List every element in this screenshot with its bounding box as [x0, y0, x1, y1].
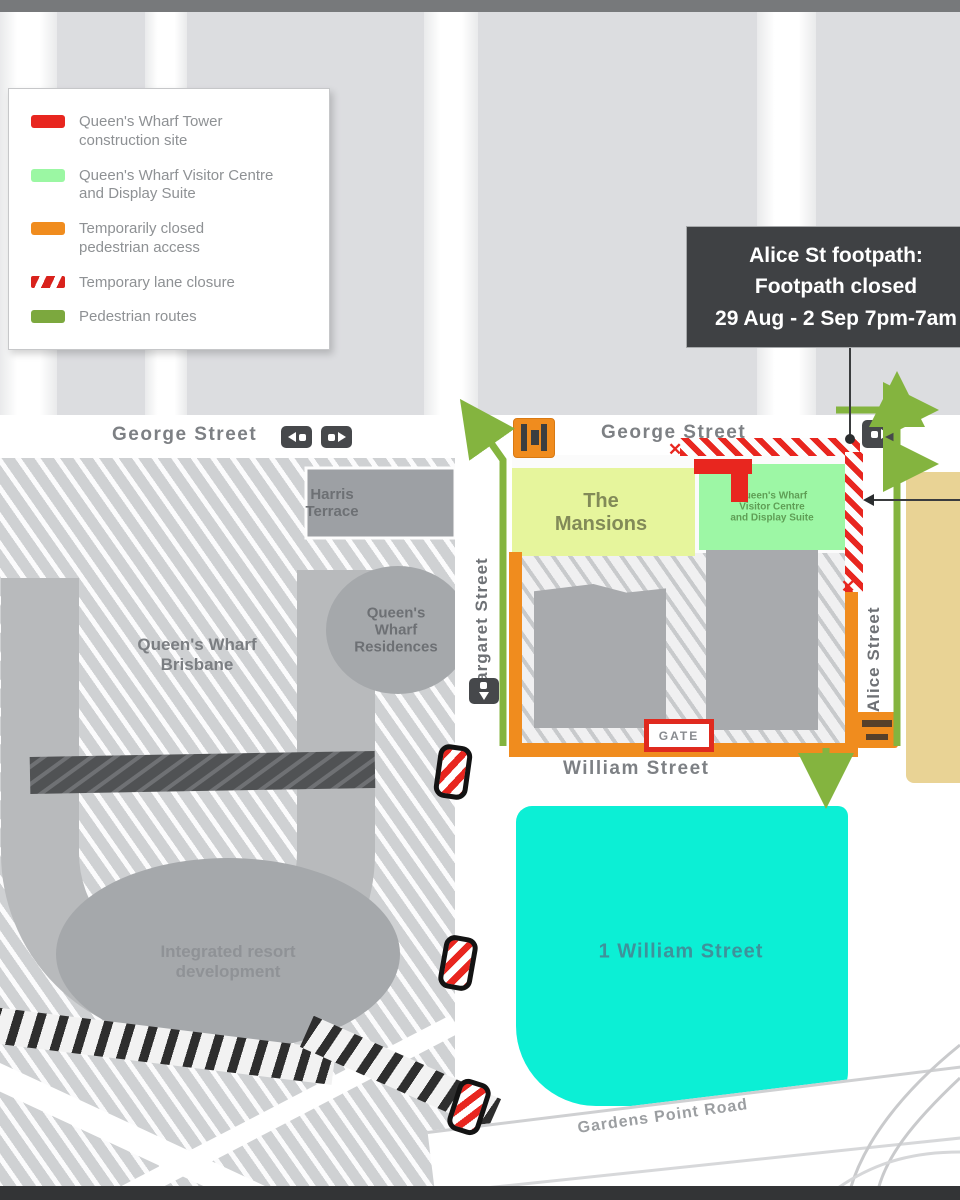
lane-closure-barrier-icon: [432, 743, 473, 801]
one-william-street-label: 1 William Street: [599, 941, 764, 964]
tooltip-line-2: Footpath closed: [687, 271, 960, 303]
lane-closure-alice-street: [845, 452, 863, 592]
pointer-arrow: [863, 494, 874, 506]
orange-swatch-icon: [31, 222, 65, 235]
legend-item-closed-access: Temporarily closed pedestrian access: [31, 220, 313, 258]
legend-label: Queen's Wharf Tower construction site: [79, 113, 222, 151]
closed-crossing-icon: [513, 418, 555, 458]
street-band: [424, 12, 478, 415]
tooltip-line-1: Alice St footpath:: [687, 240, 960, 272]
bottom-edge-strip: [0, 1186, 960, 1200]
closed-road-band: [30, 751, 376, 794]
bus-body: [299, 434, 306, 441]
pointer-line: [874, 499, 960, 501]
legend-item-lane-closure: Temporary lane closure: [31, 274, 313, 293]
qw-brisbane-label: Queen's Wharf Brisbane: [137, 635, 256, 675]
the-mansions-label: The Mansions: [555, 490, 647, 536]
green-swatch-icon: [31, 169, 65, 182]
bus-arrow-left: [288, 432, 296, 442]
queens-wharf-map: George Street George Street Harris Terra…: [0, 0, 960, 1200]
bus-body: [481, 682, 488, 689]
hatched-swatch-icon: [31, 276, 65, 288]
tooltip-line-3: 29 Aug - 2 Sep 7pm-7am: [687, 303, 960, 335]
legend-label: Pedestrian routes: [79, 308, 197, 327]
alice-street-closure-tooltip: Alice St footpath: Footpath closed 29 Au…: [686, 226, 960, 348]
olive-swatch-icon: [31, 310, 65, 323]
gate-sign: GATE: [644, 719, 714, 752]
integrated-resort-label: Integrated resort development: [160, 942, 295, 982]
lower-road: [0, 1068, 260, 1190]
bus-arrow-down: [479, 692, 489, 700]
top-edge-strip: [0, 0, 960, 12]
bus-arrow-right: [338, 432, 346, 442]
tooltip-connector-dot: [845, 434, 855, 444]
legend-item-pedestrian-routes: Pedestrian routes: [31, 308, 313, 327]
george-street-label-west: George Street: [112, 424, 257, 446]
closed-access-boundary-west: [509, 552, 522, 748]
red-swatch-icon: [31, 115, 65, 128]
bus-body: [871, 431, 878, 438]
william-street-label: William Street: [563, 758, 709, 780]
construction-building: [706, 538, 818, 730]
legend-label: Queen's Wharf Visitor Centre and Display…: [79, 167, 273, 205]
map-legend: Queen's Wharf Tower construction site Qu…: [8, 88, 330, 350]
tooltip-connector-line: [849, 347, 851, 437]
closure-end-marker-icon: ✕: [668, 441, 682, 458]
bottom-right-road-curves: [838, 1040, 960, 1190]
alice-street-label: Alice Street: [864, 542, 884, 712]
construction-building: [534, 584, 666, 728]
bus-arrow-right: [881, 429, 889, 439]
pedestrian-figure: [531, 430, 539, 445]
legend-label: Temporary lane closure: [79, 274, 235, 293]
harris-terrace-label: Harris Terrace: [305, 486, 358, 520]
site-corner-sign: [856, 712, 898, 748]
margaret-street-label: Margaret Street: [472, 492, 492, 697]
bus-southbound-icon: [469, 678, 499, 704]
bus-eastbound-icon: [862, 420, 898, 448]
qw-residences-label: Queen's Wharf Residences: [354, 605, 437, 656]
east-building: [906, 472, 960, 783]
bus-body: [328, 434, 335, 441]
legend-item-tower: Queen's Wharf Tower construction site: [31, 113, 313, 151]
lane-closure-george-street: [680, 438, 860, 456]
legend-item-visitor-centre: Queen's Wharf Visitor Centre and Display…: [31, 167, 313, 205]
legend-label: Temporarily closed pedestrian access: [79, 220, 204, 258]
tower-construction-bar: [731, 472, 748, 502]
closure-end-marker-icon: ✕: [841, 578, 855, 595]
street-band: [757, 12, 816, 415]
bus-westbound-icon: [281, 426, 312, 448]
bus-eastbound-icon: [321, 426, 352, 448]
